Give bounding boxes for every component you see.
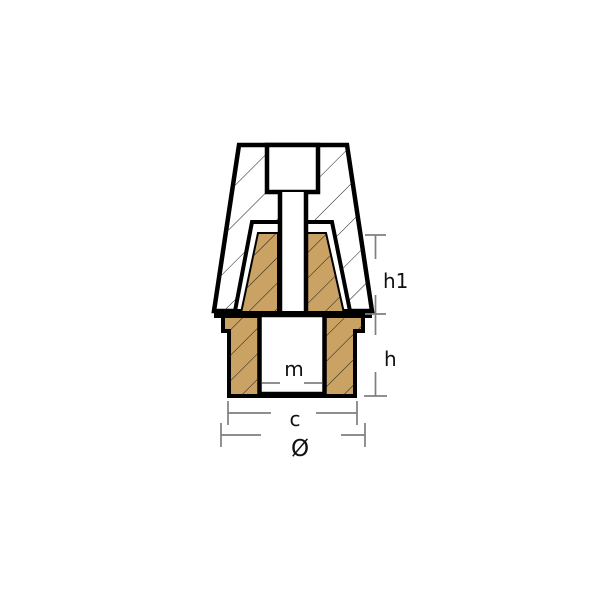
label-h1: h1 [383, 269, 408, 293]
label-diameter: Ø [291, 436, 309, 462]
drawing-canvas: h1 h m c Ø [0, 0, 600, 600]
hex-socket-cavity [267, 145, 318, 192]
label-h: h [384, 347, 397, 371]
label-c: c [290, 407, 301, 431]
anode-technical-drawing: h1 h m c Ø [0, 0, 600, 600]
stud-channel [280, 192, 306, 316]
stud-channel-void [282, 192, 304, 315]
label-m: m [284, 357, 303, 381]
